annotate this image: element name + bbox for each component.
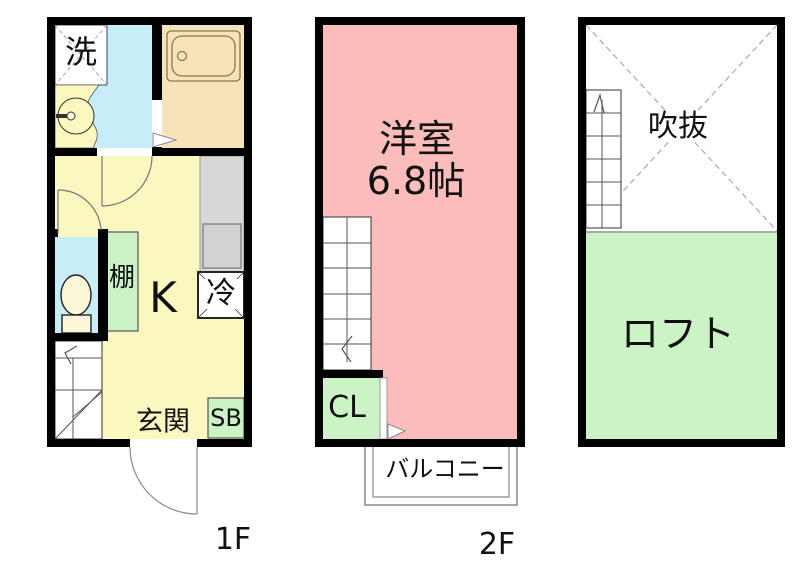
balcony-label: バルコニー xyxy=(383,457,507,481)
floor2-label: 2F xyxy=(479,530,515,560)
wall xyxy=(152,148,252,156)
wall xyxy=(47,333,108,341)
entrance-label: 玄関 xyxy=(136,409,190,436)
kitchen-sink xyxy=(203,224,241,268)
entrance-door-arc xyxy=(130,447,197,514)
floor1-plan xyxy=(47,17,252,514)
wall xyxy=(152,17,162,100)
wall xyxy=(98,229,108,341)
kitchen-label: K xyxy=(149,277,177,319)
toilet-tank xyxy=(62,315,91,333)
fridge-label: 冷 xyxy=(204,279,238,309)
room-size-label: 6.8帖 xyxy=(367,162,465,200)
toilet-bowl xyxy=(61,275,91,315)
loft-plan xyxy=(582,21,781,443)
floor1-label: 1F xyxy=(215,525,251,555)
shoebox-label: SB xyxy=(210,406,242,430)
floor2-plan xyxy=(315,21,521,505)
closet-door-strip xyxy=(380,378,387,439)
wall xyxy=(315,370,383,378)
floor-plan-canvas: 洗 棚 K 冷 玄関 SB 1F 洋室 6.8帖 CL バルコニー 2F 吹抜 … xyxy=(0,0,800,575)
loft-label: ロフト xyxy=(621,315,735,353)
laundry-label: 洗 xyxy=(65,36,97,68)
room-name-label: 洋室 xyxy=(379,120,455,158)
void-label: 吹抜 xyxy=(646,112,710,142)
shelf-label: 棚 xyxy=(109,265,135,291)
entrance-opening xyxy=(130,439,197,447)
bathroom-floor xyxy=(162,25,244,148)
closet-label: CL xyxy=(328,393,366,423)
faucet-knob xyxy=(67,112,75,120)
